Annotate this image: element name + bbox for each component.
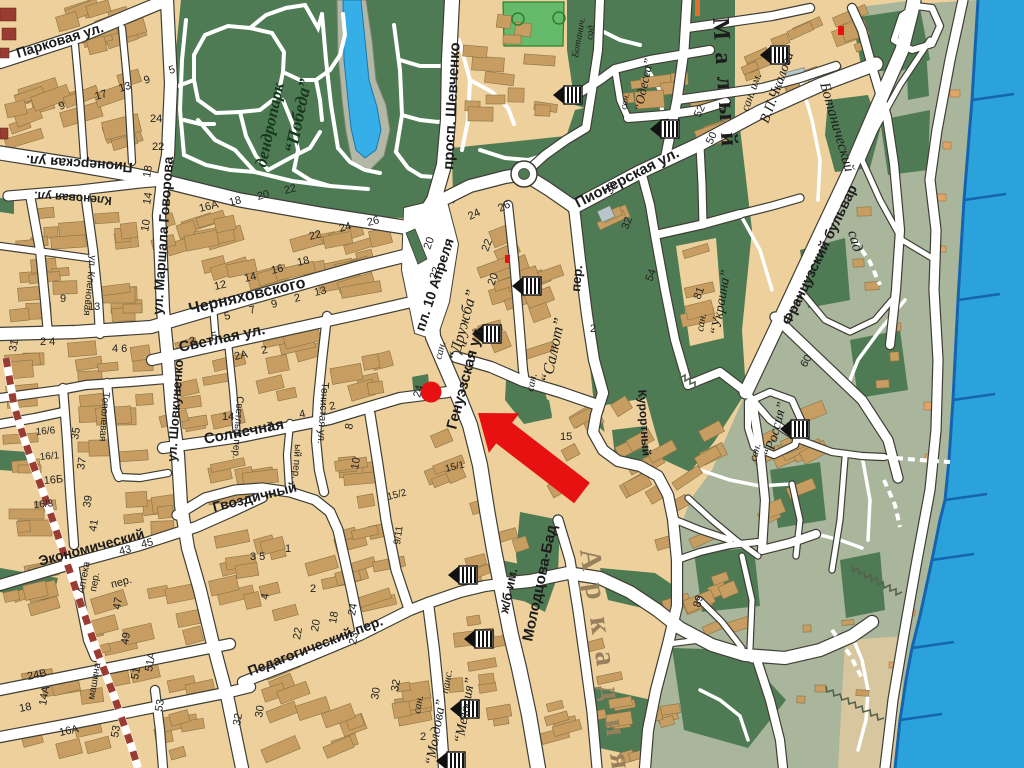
svg-text:32: 32: [389, 678, 403, 692]
svg-text:31: 31: [7, 338, 21, 352]
svg-text:51: 51: [129, 666, 143, 680]
svg-text:10: 10: [349, 456, 363, 470]
svg-text:41: 41: [87, 518, 101, 532]
svg-text:23: 23: [347, 631, 361, 645]
svg-text:10: 10: [139, 218, 153, 232]
svg-text:3 5: 3 5: [250, 551, 265, 563]
svg-text:20: 20: [309, 618, 323, 632]
svg-text:18: 18: [327, 610, 341, 624]
svg-text:16/6: 16/6: [35, 425, 56, 438]
svg-text:22: 22: [152, 141, 164, 153]
svg-text:24: 24: [346, 602, 360, 616]
svg-text:14: 14: [141, 191, 155, 205]
svg-text:13: 13: [88, 301, 100, 313]
svg-text:9: 9: [60, 293, 66, 305]
svg-text:30: 30: [369, 686, 383, 700]
svg-text:8: 8: [175, 386, 181, 398]
svg-text:пер.: пер.: [568, 264, 585, 292]
svg-text:47: 47: [111, 596, 125, 610]
svg-text:24: 24: [150, 113, 162, 125]
svg-text:4 6: 4 6: [112, 343, 127, 355]
svg-text:16/3: 16/3: [33, 498, 54, 511]
svg-text:39: 39: [81, 494, 95, 508]
svg-text:16/1: 16/1: [39, 450, 60, 463]
svg-text:16Б: 16Б: [43, 473, 63, 487]
svg-text:53: 53: [109, 724, 123, 738]
svg-text:35: 35: [69, 426, 83, 440]
svg-text:18: 18: [141, 164, 155, 178]
svg-text:32: 32: [231, 712, 245, 726]
svg-text:2: 2: [590, 323, 596, 335]
svg-text:53: 53: [153, 698, 167, 712]
svg-text:14: 14: [222, 411, 234, 423]
svg-text:2 4: 2 4: [40, 336, 55, 348]
svg-text:2: 2: [310, 583, 316, 595]
svg-text:22: 22: [291, 626, 305, 640]
svg-text:49: 49: [119, 631, 133, 645]
svg-text:18: 18: [18, 701, 32, 715]
svg-text:2: 2: [420, 731, 426, 743]
svg-text:15: 15: [560, 431, 572, 443]
svg-text:30: 30: [253, 704, 267, 718]
svg-text:1: 1: [285, 543, 291, 555]
svg-text:37: 37: [75, 456, 89, 470]
